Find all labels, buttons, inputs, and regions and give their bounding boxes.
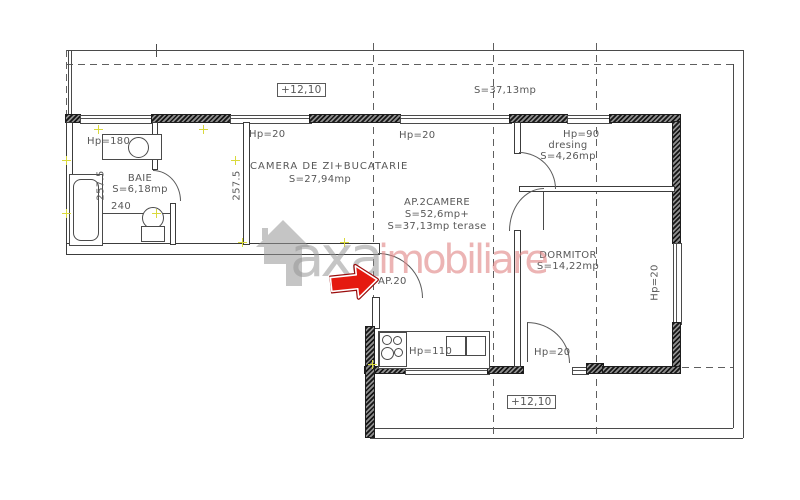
window	[567, 115, 612, 124]
cad-marker	[238, 238, 247, 247]
room-name-living: CAMERA DE ZI+BUCATARIE	[250, 161, 390, 172]
bathroom-sink-basin	[128, 137, 149, 158]
wall-bath-stub-bottom	[170, 203, 176, 245]
opening-label-bath-window: Hp=180	[87, 136, 130, 147]
apartment-area-label-1: S=52,6mp+	[377, 209, 497, 220]
wall-living-bottom	[66, 243, 380, 255]
opening-label-living-window-1: Hp=20	[249, 129, 285, 140]
window	[80, 115, 154, 124]
wall-dresing-left	[514, 122, 521, 154]
stove-burner	[393, 336, 402, 345]
wall-segment	[310, 115, 400, 122]
wall-segment	[510, 115, 567, 122]
stove-burner	[381, 347, 394, 360]
wall-hall-dormitor	[514, 230, 521, 367]
entry-label: AP.20	[378, 276, 407, 287]
cad-marker	[340, 238, 349, 247]
terrace-dashed-top	[66, 64, 733, 65]
opening-label-dormitor-door: Hp=20	[534, 347, 570, 358]
apartment-area-label-2: S=37,13mp terase	[377, 221, 497, 232]
watermark-house-icon	[256, 220, 310, 290]
level-label-bottom: +12,10	[507, 395, 556, 409]
room-area-baie: S=6,18mp	[105, 184, 175, 195]
wall-segment	[673, 323, 680, 373]
terrace-dashed-bottom-right	[682, 367, 733, 368]
grid-axis-vertical-3	[596, 43, 597, 437]
axis-tick	[156, 44, 157, 57]
boundary-bottom-line	[370, 438, 743, 439]
dimension-label-bath-width: 240	[111, 201, 131, 212]
cad-marker	[94, 125, 103, 134]
apartment-name-label: AP.2CAMERE	[377, 197, 497, 208]
opening-label-dormitor-window: Hp=20	[650, 263, 661, 303]
cad-marker	[152, 209, 161, 218]
boundary-right-line	[743, 50, 744, 438]
dimension-label-bath-height: 257.5	[96, 166, 107, 206]
wall-segment	[603, 367, 680, 373]
boundary-inner-bottom-line	[370, 428, 733, 429]
corner-column-line-1	[68, 50, 69, 115]
opening-label-dresing-window: Hp=90	[563, 129, 599, 140]
cad-marker	[62, 209, 71, 218]
window	[400, 115, 512, 124]
room-area-dormitor: S=14,22mp	[528, 261, 608, 272]
wall-pier	[587, 364, 603, 373]
level-label-top: +12,10	[277, 83, 326, 97]
wall-segment	[488, 367, 523, 373]
room-name-baie: BAIE	[105, 173, 175, 184]
boundary-top-line	[66, 50, 743, 51]
stove-burner	[394, 348, 403, 357]
room-name-dresing: dresing	[528, 140, 608, 151]
room-area-dresing: S=4,26mp	[528, 151, 608, 162]
room-area-living: S=27,94mp	[250, 174, 390, 185]
window	[673, 243, 682, 325]
entry-arrow-icon	[328, 259, 382, 304]
cad-marker	[368, 360, 377, 369]
opening-label-living-window-2: Hp=20	[399, 130, 435, 141]
wall-column-left-lower	[366, 327, 374, 437]
wall-segment	[152, 115, 230, 122]
wall-segment	[66, 115, 80, 122]
boundary-inner-right-line	[733, 64, 734, 428]
terrace-area-label: S=37,13mp	[474, 85, 536, 96]
cad-marker	[199, 125, 208, 134]
cad-marker	[62, 156, 71, 165]
wall-bath-partition	[243, 122, 250, 245]
kitchen-sink-right	[466, 336, 486, 356]
cad-marker	[231, 156, 240, 165]
corner-column-line-2	[71, 50, 72, 115]
floor-plan-canvas: +12,10 S=37,13mp Hp=180 Hp=20 Hp=20 Hp=9…	[0, 0, 800, 500]
opening-label-kitchen-window: Hp=110	[409, 346, 452, 357]
grid-axis-vertical-2	[493, 43, 494, 437]
stove-burner	[382, 335, 392, 345]
wall-segment	[673, 122, 680, 243]
toilet-tank	[141, 226, 165, 242]
wall-entry-pier	[372, 297, 380, 329]
room-name-dormitor: DORMITOR	[528, 250, 608, 261]
door-arc-dormitor	[509, 188, 544, 231]
wall-segment	[610, 115, 680, 122]
dimension-label-living-height: 257.5	[232, 166, 243, 206]
